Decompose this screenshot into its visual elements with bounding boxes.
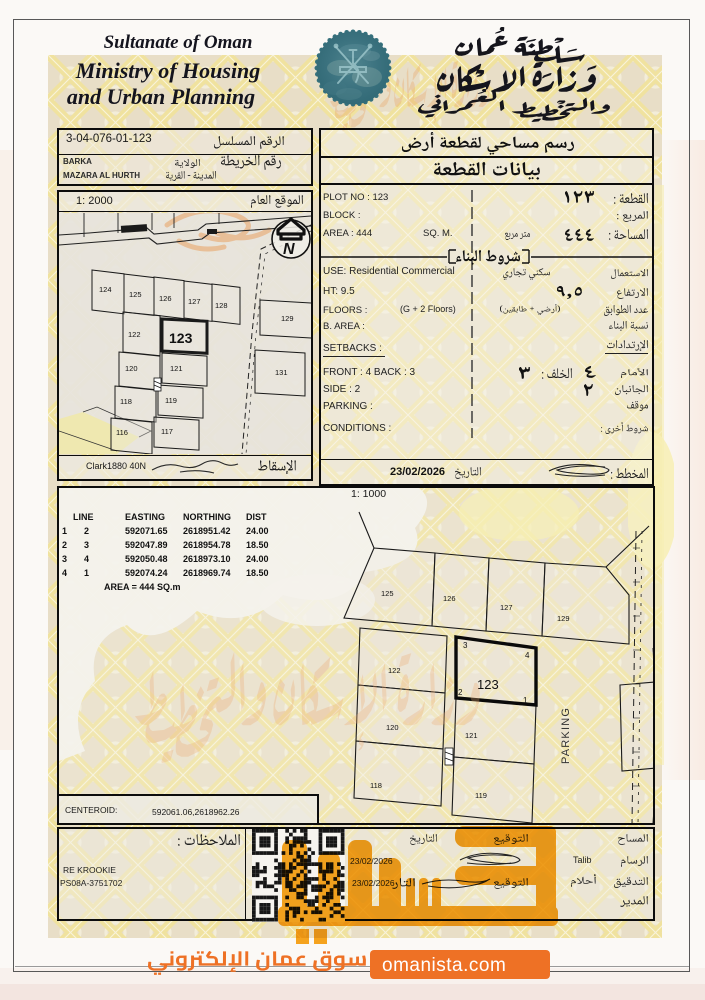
svg-text:128: 128	[215, 301, 228, 310]
svg-text:123: 123	[477, 677, 499, 692]
svg-text:124: 124	[99, 285, 112, 294]
svg-text:116: 116	[116, 428, 128, 437]
svg-text:127: 127	[188, 297, 201, 306]
svg-text:129: 129	[557, 614, 570, 623]
svg-text:120: 120	[125, 364, 138, 373]
svg-text:117: 117	[161, 427, 173, 436]
svg-text:3: 3	[463, 641, 468, 650]
svg-text:4: 4	[525, 651, 530, 660]
svg-text:125: 125	[129, 290, 142, 299]
svg-text:122: 122	[128, 330, 141, 339]
svg-text:121: 121	[170, 364, 183, 373]
svg-text:118: 118	[120, 397, 132, 406]
svg-text:118: 118	[370, 781, 382, 790]
svg-text:126: 126	[443, 594, 456, 603]
svg-text:127: 127	[500, 603, 513, 612]
svg-text:123: 123	[169, 330, 193, 346]
svg-text:131: 131	[275, 368, 288, 377]
svg-text:PARKING: PARKING	[560, 707, 572, 764]
svg-text:119: 119	[475, 791, 487, 800]
svg-text:129: 129	[281, 314, 294, 323]
svg-text:1: 1	[523, 696, 528, 705]
svg-text:125: 125	[381, 589, 394, 598]
svg-text:119: 119	[165, 396, 177, 405]
svg-text:126: 126	[159, 294, 172, 303]
svg-text:N: N	[283, 241, 295, 258]
